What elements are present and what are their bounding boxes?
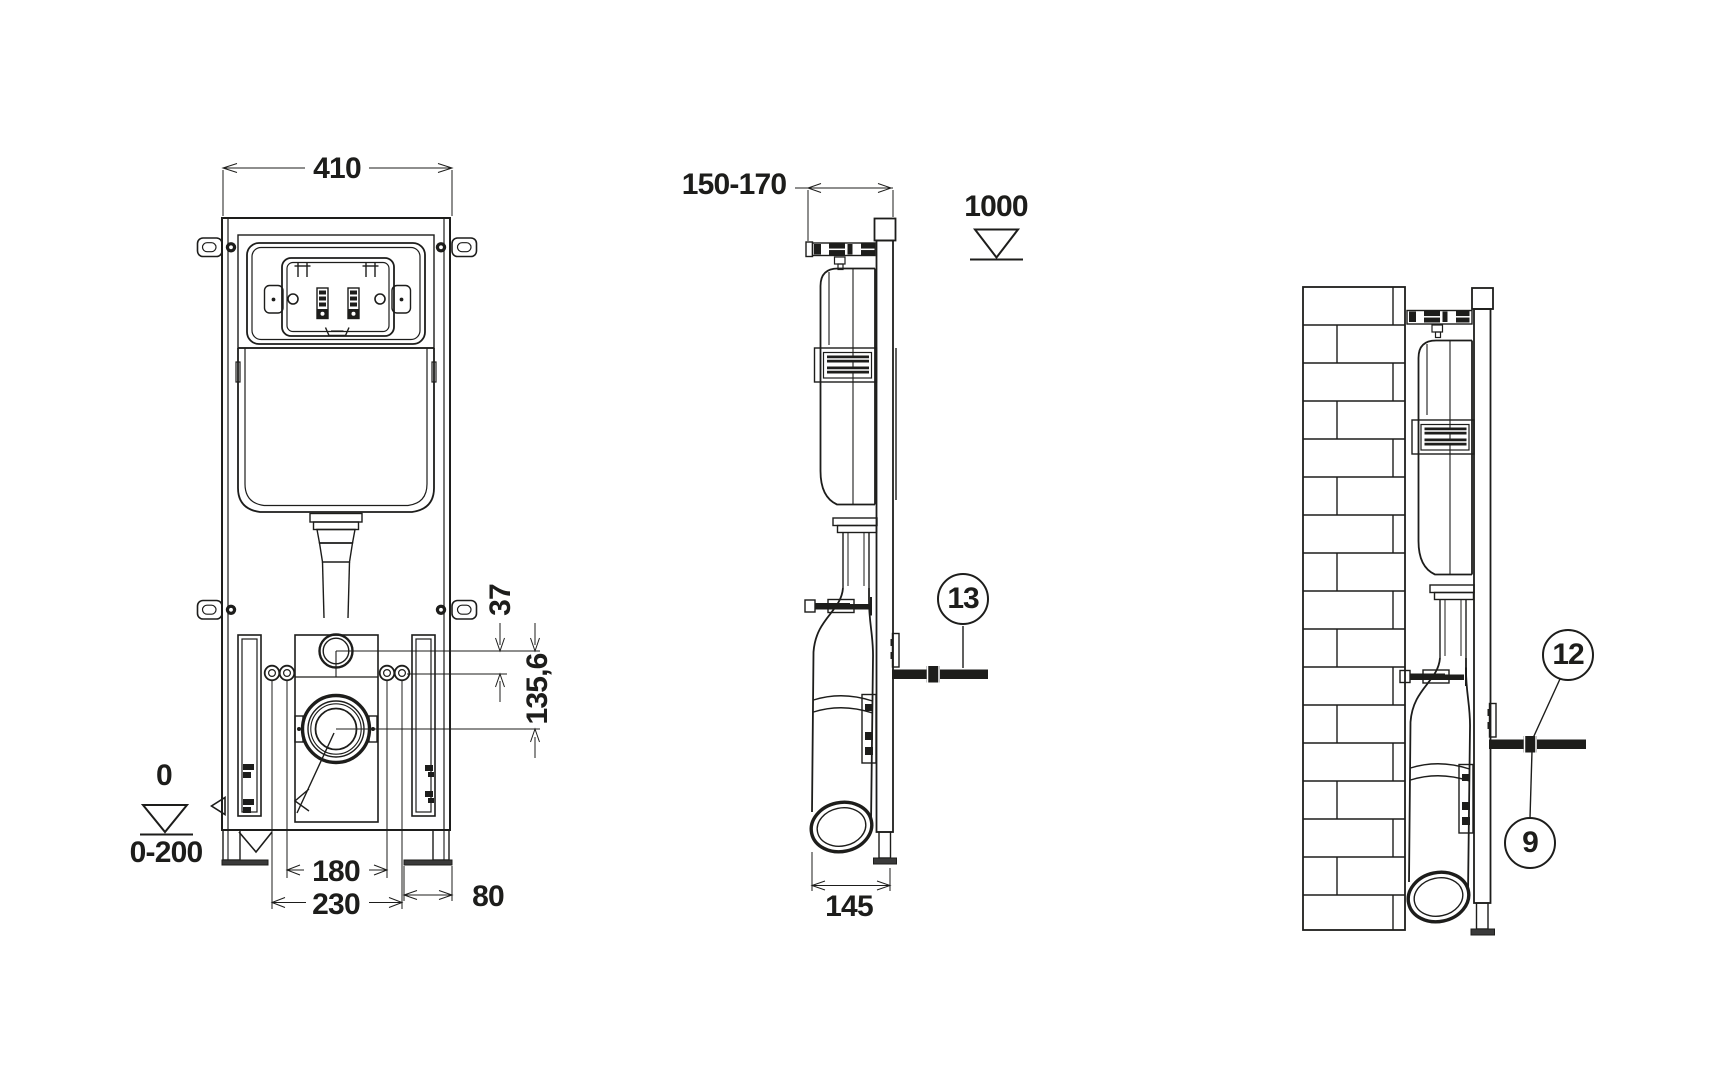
callout-13-number: 13 <box>947 582 978 616</box>
flush-plate-height-datum <box>970 230 1023 260</box>
dim-fixings-outer: 230 <box>308 890 364 920</box>
frame-post-installed <box>1471 288 1495 935</box>
dim-outlet-depth: 145 <box>825 892 873 922</box>
lower-assembly <box>238 635 435 823</box>
flush-unit-installed <box>1407 311 1472 338</box>
hanger-bracket-left <box>295 262 311 277</box>
tank-bracket-installed <box>1412 420 1474 454</box>
tank-bracket-side <box>815 348 877 382</box>
dim-drain-offset: 135,6 <box>523 653 553 724</box>
cistern-front <box>236 348 436 512</box>
callout-12-leader <box>1534 679 1561 737</box>
fixing-rod-side <box>892 666 988 683</box>
front-view <box>140 164 540 910</box>
datum-range-label: 0-200 <box>130 838 203 868</box>
datum-zero-label: 0 <box>156 761 172 791</box>
outlet-elbow-installed <box>1404 658 1474 927</box>
cistern-installed <box>1419 341 1473 575</box>
callout-9-number: 9 <box>1522 826 1538 860</box>
callout-12: 12 <box>1542 629 1594 681</box>
flush-pipe-side <box>833 518 877 588</box>
technical-drawing-sheet: 410 37 135,6 0 0-200 180 230 80 150-170 … <box>0 0 1728 1079</box>
flush-pipe-installed <box>1430 585 1474 658</box>
flush-plate-access-box <box>238 235 434 348</box>
callout-12-number: 12 <box>1552 638 1583 672</box>
flush-pipe-front <box>310 514 362 619</box>
callout-9-leader <box>1530 751 1532 818</box>
anchor-arm-side <box>805 597 871 616</box>
dim-foot-width: 80 <box>472 882 504 912</box>
flush-unit-side <box>806 242 875 270</box>
outlet-elbow-side <box>807 588 877 857</box>
dim-inlet-offset: 37 <box>486 584 516 616</box>
pan-fixing-side <box>862 626 988 763</box>
cistern-side <box>821 269 876 505</box>
pan-fixing-installed <box>1459 679 1586 833</box>
dim-frame-width: 410 <box>309 154 365 184</box>
fixing-rod-installed <box>1489 736 1586 753</box>
callout-13: 13 <box>937 573 989 625</box>
callout-9: 9 <box>1504 817 1556 869</box>
floor-datum-symbol <box>140 805 193 835</box>
water-inlet <box>320 635 353 678</box>
brick-wall <box>1303 287 1405 930</box>
hanger-bracket-right <box>363 262 379 277</box>
push-rod-right <box>348 288 359 319</box>
side-view <box>795 184 1023 892</box>
datum-height-label: 1000 <box>964 192 1028 222</box>
dim-frame-depth: 150-170 <box>682 170 787 200</box>
dim-fixings-inner: 180 <box>308 857 364 887</box>
push-rod-left <box>317 288 328 319</box>
frame-post-side <box>874 219 897 865</box>
